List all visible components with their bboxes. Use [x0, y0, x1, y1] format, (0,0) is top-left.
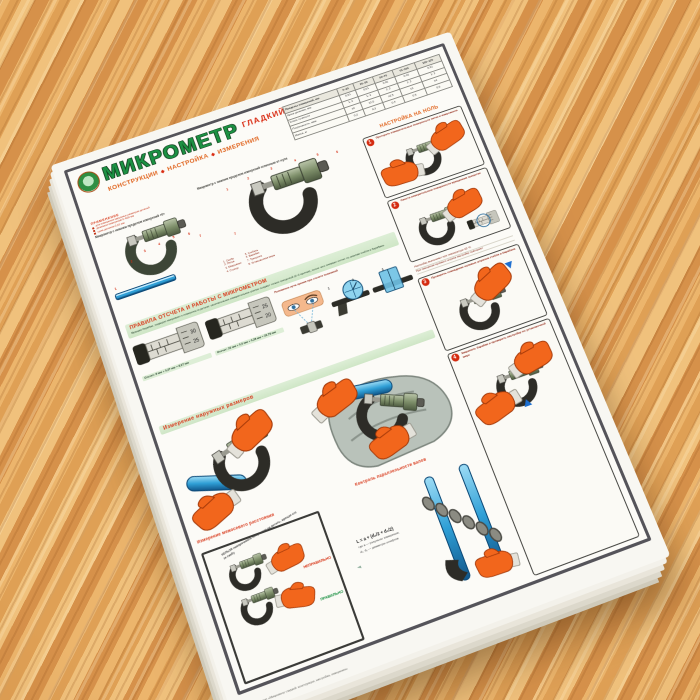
- callout-number: 7: [199, 234, 202, 238]
- photo-scene: МИКРОМЕТР ГЛАДКИЙ КОНСТРУКЦИИ ◆ НАСТРОЙК…: [0, 0, 700, 700]
- publisher-emblem-icon: [75, 169, 103, 196]
- subtitle-separator-icon: ◆: [210, 151, 216, 157]
- eyes-illustration: [278, 287, 336, 342]
- panel-illustration: [453, 329, 578, 433]
- right-label: ПРАВИЛЬНО: [320, 589, 344, 601]
- poster-title-qualifier: ГЛАДКИЙ: [241, 106, 287, 129]
- subtitle-separator-icon: ◆: [160, 168, 166, 174]
